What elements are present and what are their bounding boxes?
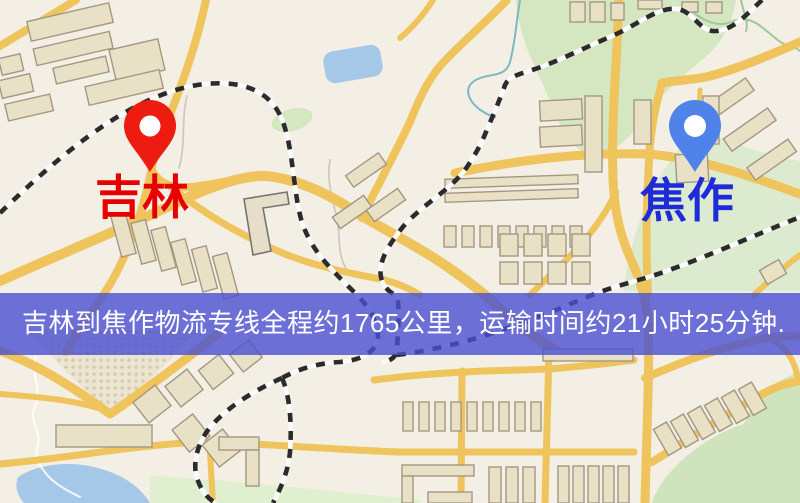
logistics-route-map: 吉林到焦作物流专线全程约1765公里，运输时间约21小时25分钟. 吉林 焦作 <box>0 0 800 503</box>
route-info-banner: 吉林到焦作物流专线全程约1765公里，运输时间约21小时25分钟. <box>0 293 800 355</box>
map-image: 吉林到焦作物流专线全程约1765公里，运输时间约21小时25分钟. 吉林 焦作 <box>0 0 800 503</box>
origin-city-label: 吉林 <box>95 171 189 224</box>
route-info-text: 吉林到焦作物流专线全程约1765公里，运输时间约21小时25分钟. <box>22 308 785 338</box>
destination-city-label: 焦作 <box>640 174 734 227</box>
